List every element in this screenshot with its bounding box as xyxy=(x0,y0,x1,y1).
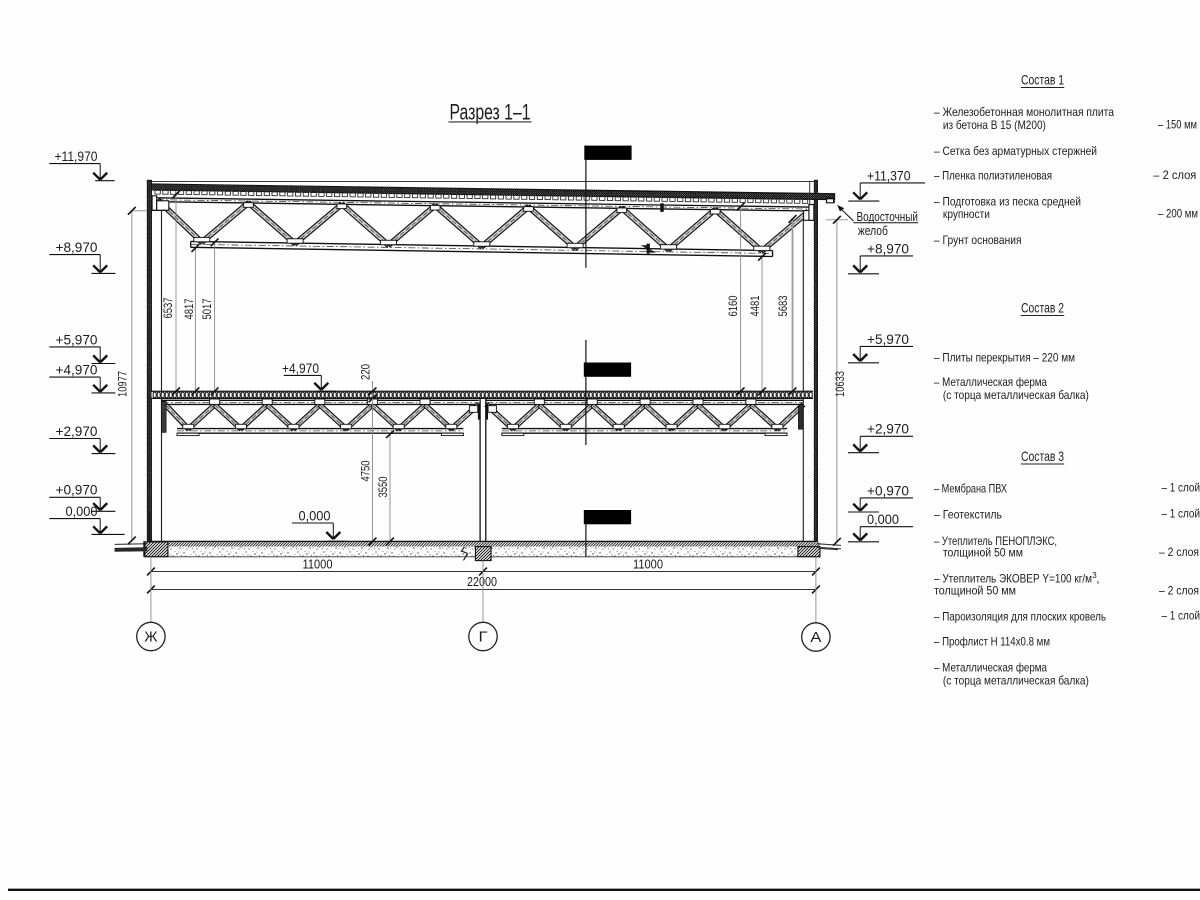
svg-text:– Железобетонная монолитная п: – Железобетонная монолитная плита xyxy=(934,105,1114,119)
svg-text:4817: 4817 xyxy=(184,299,196,320)
svg-text:,: , xyxy=(1096,572,1099,586)
svg-text:– Геотекстиль: – Геотекстиль xyxy=(934,508,1002,522)
svg-text:А: А xyxy=(810,629,821,646)
svg-text:– Сетка без арматурных стержне: – Сетка без арматурных стержней xyxy=(934,144,1097,158)
svg-text:– 2 слоя: – 2 слоя xyxy=(1159,584,1199,598)
svg-text:5683: 5683 xyxy=(778,296,790,317)
svg-text:+4,970: +4,970 xyxy=(56,362,98,378)
svg-text:Состав 2: Состав 2 xyxy=(1021,300,1064,316)
svg-text:– 150 мм: – 150 мм xyxy=(1158,118,1197,132)
svg-text:– Плиты перекрытия – 220 мм: – Плиты перекрытия – 220 мм xyxy=(934,351,1075,365)
svg-text:4750: 4750 xyxy=(360,461,372,482)
svg-text:3550: 3550 xyxy=(378,477,390,498)
svg-text:– Металлическая ферма: – Металлическая ферма xyxy=(934,661,1047,675)
svg-text:– 1 слой: – 1 слой xyxy=(1162,481,1200,495)
svg-text:Состав 1: Состав 1 xyxy=(1021,72,1064,88)
svg-text:220: 220 xyxy=(360,364,372,380)
svg-text:– 2 слоя: – 2 слоя xyxy=(1159,545,1199,559)
svg-text:+2,970: +2,970 xyxy=(867,421,909,437)
svg-text:6160: 6160 xyxy=(728,296,740,317)
svg-text:10633: 10633 xyxy=(835,371,847,397)
svg-text:(с торца металлическая балка): (с торца металлическая балка) xyxy=(943,388,1089,402)
svg-text:толщиной 50 мм: толщиной 50 мм xyxy=(943,546,1023,560)
svg-text:крупности: крупности xyxy=(943,207,990,221)
svg-text:10977: 10977 xyxy=(118,371,130,397)
svg-text:из бетона В 15 (М200): из бетона В 15 (М200) xyxy=(943,118,1046,132)
svg-text:0,000: 0,000 xyxy=(299,507,331,523)
svg-text:11000: 11000 xyxy=(633,557,663,571)
svg-text:22000: 22000 xyxy=(467,575,497,589)
svg-text:– Металлическая ферма: – Металлическая ферма xyxy=(934,375,1047,389)
svg-text:5017: 5017 xyxy=(202,299,214,320)
svg-text:– Пленка полиэтиленовая: – Пленка полиэтиленовая xyxy=(934,169,1052,183)
svg-text:– 200 мм: – 200 мм xyxy=(1158,207,1198,221)
svg-text:– Пароизоляция для плоских кро: – Пароизоляция для плоских кровель xyxy=(934,610,1106,624)
svg-text:+4,970: +4,970 xyxy=(282,360,319,376)
svg-text:Состав 3: Состав 3 xyxy=(1021,448,1064,464)
svg-text:– 1 слой: – 1 слой xyxy=(1162,507,1200,521)
svg-text:+5,970: +5,970 xyxy=(56,331,98,347)
svg-text:4481: 4481 xyxy=(750,296,762,317)
svg-text:– 2 слоя: – 2 слоя xyxy=(1153,168,1196,182)
svg-text:желоб: желоб xyxy=(858,224,888,238)
svg-text:+0,970: +0,970 xyxy=(867,482,909,498)
svg-text:– Мембрана ПВХ: – Мембрана ПВХ xyxy=(934,482,1007,496)
svg-text:+2,970: +2,970 xyxy=(56,423,98,439)
svg-text:+11,970: +11,970 xyxy=(55,148,98,164)
svg-text:+11,370: +11,370 xyxy=(867,167,911,183)
svg-text:Разрез 1–1: Разрез 1–1 xyxy=(450,99,531,124)
svg-text:0,000: 0,000 xyxy=(867,511,899,527)
svg-text:Водосточный: Водосточный xyxy=(857,210,919,224)
svg-text:Г: Г xyxy=(479,629,488,646)
svg-text:+8,970: +8,970 xyxy=(56,239,98,255)
svg-text:– 1 слой: – 1 слой xyxy=(1162,609,1200,623)
svg-text:11000: 11000 xyxy=(303,557,333,571)
svg-text:6537: 6537 xyxy=(163,298,175,319)
svg-text:– Профлист Н 114х0.8 мм: – Профлист Н 114х0.8 мм xyxy=(934,635,1050,649)
svg-text:+0,970: +0,970 xyxy=(56,482,98,498)
svg-text:+5,970: +5,970 xyxy=(867,331,909,347)
svg-text:+8,970: +8,970 xyxy=(867,240,909,256)
svg-text:– Грунт основания: – Грунт основания xyxy=(934,233,1022,247)
svg-text:толщиной 50 мм: толщиной 50 мм xyxy=(934,584,1016,598)
svg-text:(с торца металлическая балка): (с торца металлическая балка) xyxy=(943,674,1089,688)
svg-text:0,000: 0,000 xyxy=(66,503,98,519)
svg-text:Ж: Ж xyxy=(144,629,157,646)
